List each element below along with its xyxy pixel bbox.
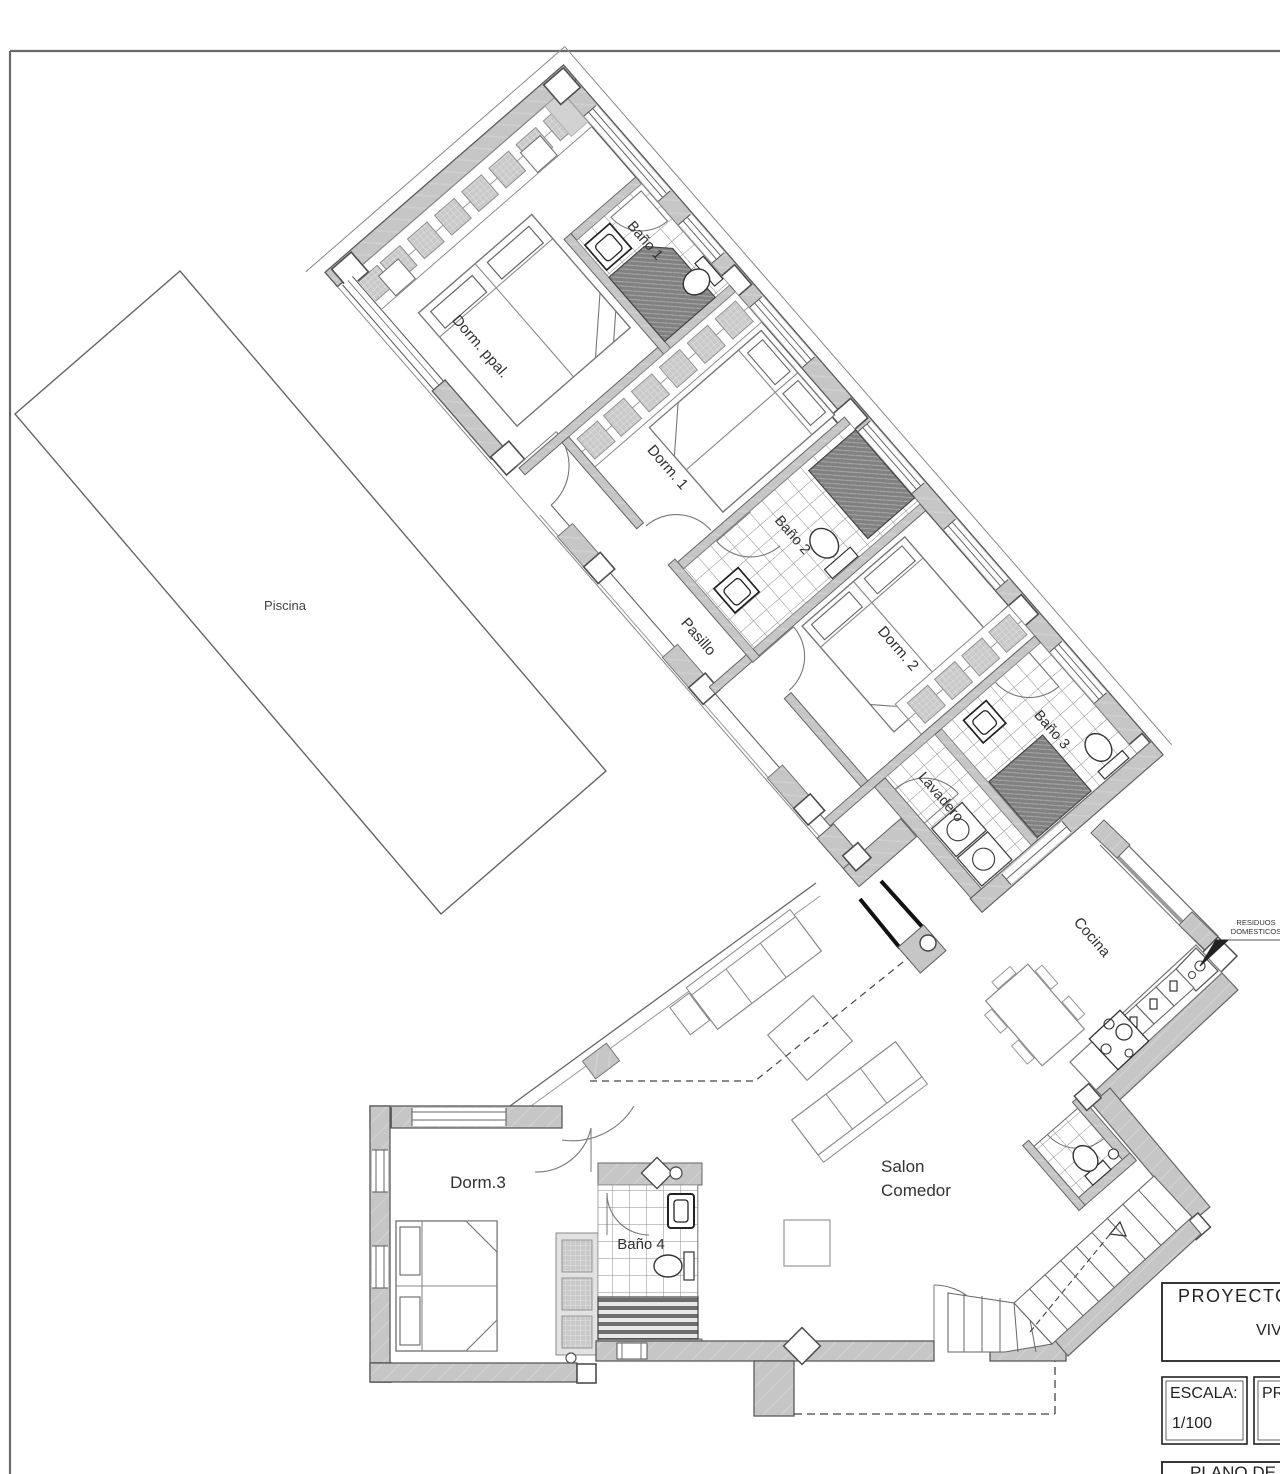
svg-text:Comedor: Comedor: [881, 1181, 951, 1200]
svg-text:PLANO DE: PLANO DE: [1190, 1463, 1276, 1474]
svg-text:DOMESTICOS: DOMESTICOS: [1231, 927, 1280, 936]
svg-text:VIV: VIV: [1256, 1322, 1280, 1339]
svg-text:1/100: 1/100: [1172, 1415, 1212, 1432]
svg-text:Baño 4: Baño 4: [617, 1236, 665, 1253]
svg-text:Salon: Salon: [881, 1157, 924, 1176]
svg-text:ESCALA:: ESCALA:: [1170, 1385, 1238, 1402]
svg-text:RESIDUOS: RESIDUOS: [1236, 918, 1275, 927]
svg-text:PR: PR: [1262, 1385, 1280, 1402]
svg-text:Dorm.3: Dorm.3: [450, 1173, 506, 1192]
svg-text:PROYECTO B: PROYECTO B: [1178, 1286, 1280, 1306]
svg-text:Piscina: Piscina: [264, 598, 307, 613]
